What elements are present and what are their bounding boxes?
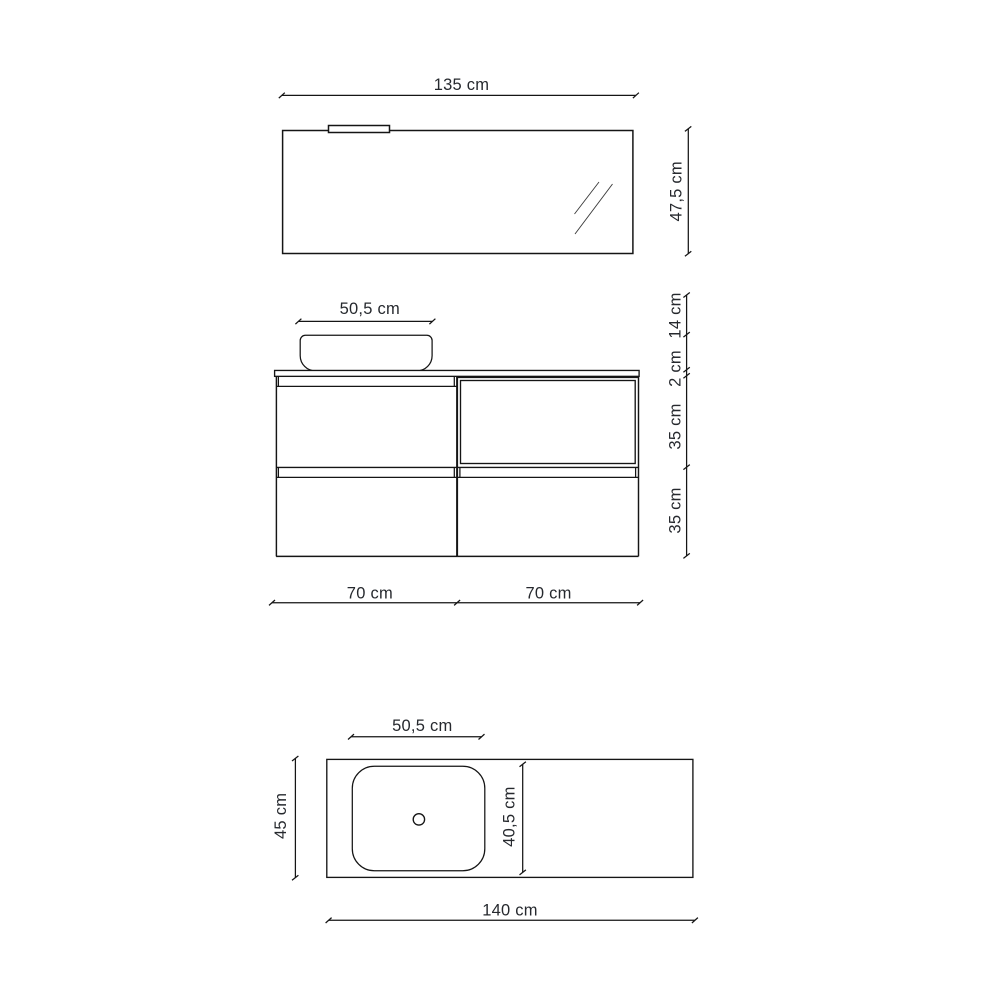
svg-text:50,5 cm: 50,5 cm (392, 717, 452, 735)
svg-text:70 cm: 70 cm (347, 585, 393, 603)
svg-text:140 cm: 140 cm (482, 902, 538, 920)
svg-text:40,5 cm: 40,5 cm (500, 786, 518, 846)
svg-text:35 cm: 35 cm (667, 403, 685, 449)
svg-text:50,5 cm: 50,5 cm (340, 300, 400, 318)
svg-text:14 cm: 14 cm (667, 292, 685, 338)
svg-text:135 cm: 135 cm (434, 76, 490, 94)
svg-text:35 cm: 35 cm (667, 487, 685, 533)
svg-text:47,5 cm: 47,5 cm (668, 161, 686, 221)
svg-text:2 cm: 2 cm (667, 350, 685, 387)
svg-text:70 cm: 70 cm (526, 585, 572, 603)
svg-text:45 cm: 45 cm (272, 793, 290, 839)
